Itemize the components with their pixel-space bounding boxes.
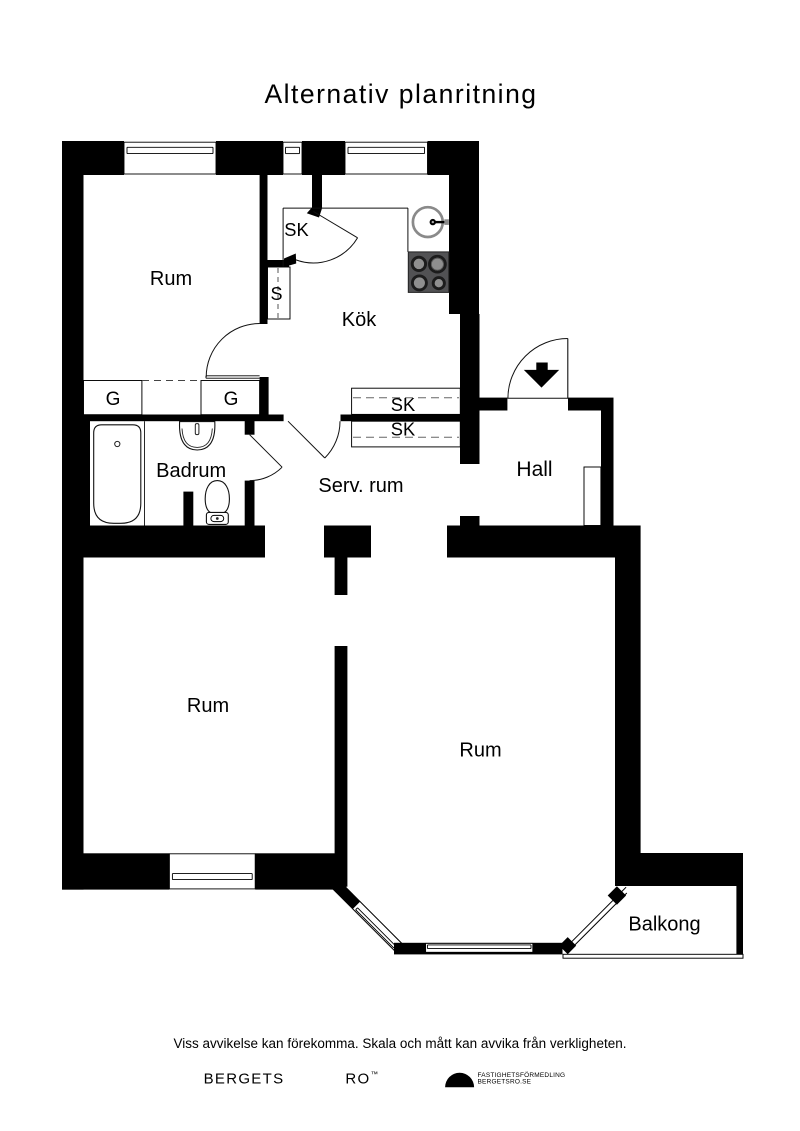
svg-text:G: G [106, 389, 121, 410]
svg-text:G: G [224, 389, 239, 410]
svg-text:Rum: Rum [459, 740, 501, 762]
svg-text:SK: SK [391, 394, 415, 415]
svg-text:Rum: Rum [150, 268, 192, 290]
svg-text:BERGETS: BERGETS [204, 1071, 285, 1088]
svg-text:SK: SK [391, 418, 415, 439]
svg-text:RO: RO [345, 1071, 370, 1088]
svg-text:BERGETSRO.SE: BERGETSRO.SE [478, 1079, 532, 1086]
svg-text:FASTIGHETSFÖRMEDLING: FASTIGHETSFÖRMEDLING [478, 1071, 566, 1079]
svg-text:Badrum: Badrum [156, 460, 226, 482]
svg-text:Alternativ planritning: Alternativ planritning [264, 79, 537, 109]
svg-text:™: ™ [371, 1070, 379, 1079]
svg-text:Rum: Rum [187, 695, 229, 717]
svg-text:Serv. rum: Serv. rum [318, 475, 403, 497]
svg-text:Hall: Hall [516, 458, 552, 481]
svg-text:SK: SK [284, 219, 308, 240]
svg-text:Kök: Kök [342, 309, 377, 331]
svg-text:S: S [270, 284, 282, 304]
svg-text:Viss avvikelse kan förekomma.: Viss avvikelse kan förekomma. Skala och … [174, 1036, 627, 1051]
svg-text:Balkong: Balkong [628, 914, 700, 936]
